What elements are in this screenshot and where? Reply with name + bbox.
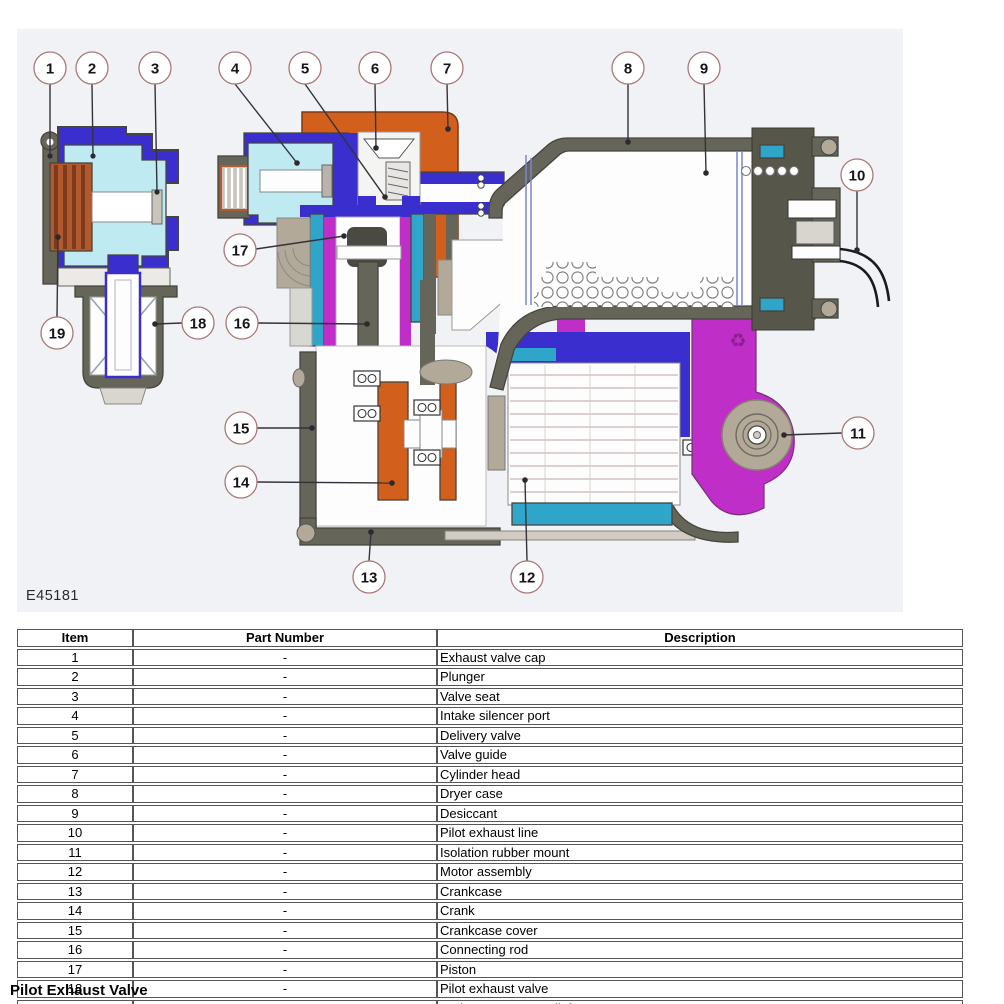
cell-part-number: - [133,980,437,998]
callout-8: 8 [612,52,644,84]
col-header-item: Item [17,629,133,647]
cell-part-number: - [133,688,437,706]
page: ♻ [0,0,1004,1004]
callout-7: 7 [431,52,463,84]
col-header-description: Description [437,629,963,647]
cell-part-number: - [133,805,437,823]
table-row: 5 - Delivery valve [17,727,963,745]
cell-description: Delivery valve [437,727,963,745]
parts-table-container: Item Part Number Description 1 - Exhaust… [17,627,963,1004]
callout-12: 12 [511,561,543,593]
cell-description: Intake silencer port [437,707,963,725]
cell-item-number: 7 [17,766,133,784]
svg-text:7: 7 [443,61,451,78]
cell-item-number: 12 [17,863,133,881]
svg-text:18: 18 [190,316,207,333]
cell-item-number: 6 [17,746,133,764]
table-row: 8 - Dryer case [17,785,963,803]
svg-text:19: 19 [49,326,66,343]
svg-text:8: 8 [624,61,632,78]
table-row: 16 - Connecting rod [17,941,963,959]
cell-part-number: - [133,727,437,745]
cell-item-number: 9 [17,805,133,823]
svg-text:14: 14 [233,475,250,492]
cell-item-number: 10 [17,824,133,842]
cell-item-number: 3 [17,688,133,706]
cell-description: Valve guide [437,746,963,764]
cell-part-number: - [133,883,437,901]
cell-part-number: - [133,746,437,764]
table-row: 7 - Cylinder head [17,766,963,784]
callout-18: 18 [182,307,214,339]
cell-part-number: - [133,902,437,920]
cell-item-number: 5 [17,727,133,745]
cell-part-number: - [133,707,437,725]
cell-item-number: 4 [17,707,133,725]
cell-description: Dryer case [437,785,963,803]
callout-11: 11 [842,417,874,449]
cell-part-number: - [133,766,437,784]
table-row: 2 - Plunger [17,668,963,686]
cell-description: Valve seat [437,688,963,706]
cell-description: Crank [437,902,963,920]
svg-text:2: 2 [88,61,96,78]
cell-part-number: - [133,668,437,686]
table-row: 18 - Pilot exhaust valve [17,980,963,998]
table-row: 17 - Piston [17,961,963,979]
cell-item-number: 11 [17,844,133,862]
table-row: 19 - Spring - pressure relief [17,1000,963,1004]
cell-part-number: - [133,844,437,862]
callout-17: 17 [224,234,256,266]
cell-description: Pilot exhaust valve [437,980,963,998]
callout-2: 2 [76,52,108,84]
cell-part-number: - [133,941,437,959]
table-row: 14 - Crank [17,902,963,920]
table-row: 4 - Intake silencer port [17,707,963,725]
cell-description: Crankcase cover [437,922,963,940]
cell-item-number: 13 [17,883,133,901]
cell-description: Motor assembly [437,863,963,881]
cell-item-number: 2 [17,668,133,686]
parts-table: Item Part Number Description 1 - Exhaust… [17,627,963,1004]
table-row: 15 - Crankcase cover [17,922,963,940]
recycle-icon: ♻ [729,331,746,352]
cell-description: Cylinder head [437,766,963,784]
svg-text:15: 15 [233,421,250,438]
callout-13: 13 [353,561,385,593]
col-header-part-number: Part Number [133,629,437,647]
table-row: 1 - Exhaust valve cap [17,649,963,667]
cell-description: Piston [437,961,963,979]
callout-5: 5 [289,52,321,84]
callout-14: 14 [225,466,257,498]
callout-6: 6 [359,52,391,84]
svg-text:17: 17 [232,243,249,260]
table-row: 10 - Pilot exhaust line [17,824,963,842]
table-header-row: Item Part Number Description [17,629,963,647]
callout-3: 3 [139,52,171,84]
cell-part-number: - [133,922,437,940]
table-row: 13 - Crankcase [17,883,963,901]
svg-text:13: 13 [361,570,378,587]
callout-9: 9 [688,52,720,84]
cell-part-number: - [133,824,437,842]
svg-text:6: 6 [371,61,379,78]
cell-part-number: - [133,863,437,881]
callout-15: 15 [225,412,257,444]
cell-description: Desiccant [437,805,963,823]
callout-19: 19 [41,317,73,349]
cell-item-number: 17 [17,961,133,979]
cell-part-number: - [133,649,437,667]
callout-10: 10 [841,159,873,191]
cell-part-number: - [133,1000,437,1004]
cell-description: Connecting rod [437,941,963,959]
cell-description: Isolation rubber mount [437,844,963,862]
table-row: 6 - Valve guide [17,746,963,764]
cell-item-number: 8 [17,785,133,803]
svg-text:1: 1 [46,61,54,78]
desiccant-balls [534,292,734,307]
table-row: 12 - Motor assembly [17,863,963,881]
svg-text:4: 4 [231,61,240,78]
svg-text:3: 3 [151,61,159,78]
svg-text:10: 10 [849,168,866,185]
table-row: 11 - Isolation rubber mount [17,844,963,862]
figure-code: E45181 [26,588,79,604]
compressor-cross-section-diagram: ♻ [0,0,1004,622]
section-heading-pilot-exhaust-valve: Pilot Exhaust Valve [10,982,148,999]
svg-text:11: 11 [850,426,866,443]
cell-description: Spring - pressure relief [437,1000,963,1004]
cell-description: Plunger [437,668,963,686]
cell-description: Crankcase [437,883,963,901]
svg-text:9: 9 [700,61,708,78]
svg-text:16: 16 [234,316,251,333]
cell-item-number: 15 [17,922,133,940]
cell-item-number: 16 [17,941,133,959]
cell-part-number: - [133,785,437,803]
cell-part-number: - [133,961,437,979]
callout-4: 4 [219,52,251,84]
svg-text:12: 12 [519,570,536,587]
cell-item-number: 19 [17,1000,133,1004]
table-row: 9 - Desiccant [17,805,963,823]
cell-item-number: 1 [17,649,133,667]
callout-16: 16 [226,307,258,339]
callout-1: 1 [34,52,66,84]
table-row: 3 - Valve seat [17,688,963,706]
cell-description: Pilot exhaust line [437,824,963,842]
cell-item-number: 14 [17,902,133,920]
svg-text:5: 5 [301,61,309,78]
cell-description: Exhaust valve cap [437,649,963,667]
